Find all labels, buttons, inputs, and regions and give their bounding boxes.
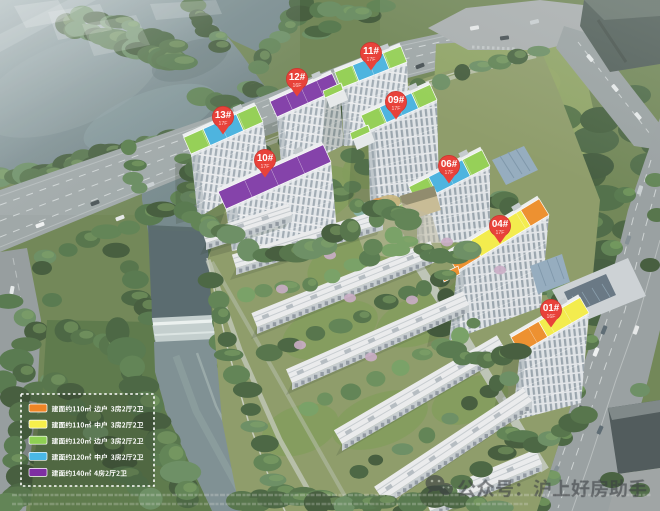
svg-text:09#: 09#	[388, 95, 405, 106]
svg-text:06#: 06#	[441, 159, 458, 170]
svg-text:04#: 04#	[492, 219, 509, 230]
svg-text:17F: 17F	[219, 121, 228, 127]
svg-text:17F: 17F	[445, 170, 454, 176]
svg-text:10#: 10#	[257, 153, 274, 164]
svg-text:16F: 16F	[293, 83, 302, 89]
svg-text:01#: 01#	[543, 303, 560, 314]
svg-text:16F: 16F	[547, 314, 556, 320]
svg-text:17F: 17F	[496, 230, 505, 236]
svg-text:12#: 12#	[289, 72, 306, 83]
svg-text:13#: 13#	[215, 110, 232, 121]
svg-text:17F: 17F	[261, 164, 270, 170]
svg-text:11#: 11#	[363, 46, 379, 57]
svg-text:17F: 17F	[392, 106, 401, 112]
svg-text:17F: 17F	[367, 57, 376, 63]
